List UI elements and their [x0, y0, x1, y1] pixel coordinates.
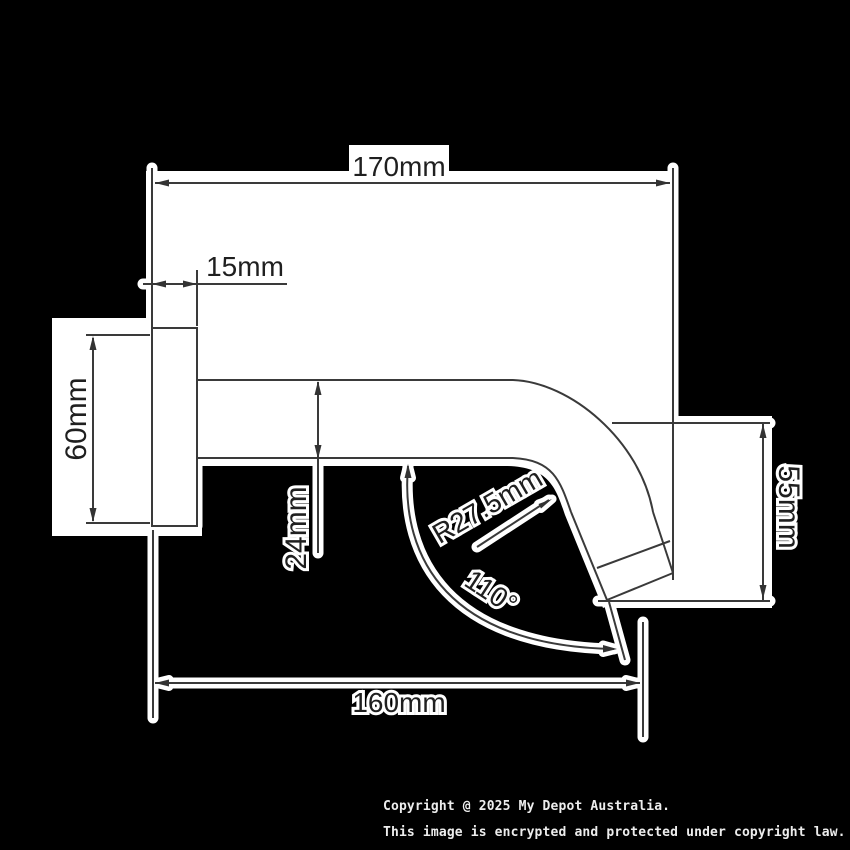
label-outlet-height: 55mm [772, 465, 805, 548]
footer-copyright-line1: Copyright @ 2025 My Depot Australia. [383, 799, 670, 814]
label-reach: 160mm [352, 687, 445, 718]
diagram-stage: 170mm 15mm 60mm 24mm R27.5mm 110° 55mm 1… [0, 0, 850, 850]
label-spout-diameter: 24mm [280, 486, 313, 569]
spout-dimension-diagram: 170mm 15mm 60mm 24mm R27.5mm 110° 55mm 1… [0, 0, 850, 850]
label-wall-plate-depth: 15mm [206, 251, 284, 282]
footer-copyright-line2: This image is encrypted and protected un… [383, 825, 846, 840]
label-wall-plate-height: 60mm [60, 377, 93, 460]
label-total-length: 170mm [352, 151, 445, 182]
drawing-background-55-region [612, 416, 772, 608]
